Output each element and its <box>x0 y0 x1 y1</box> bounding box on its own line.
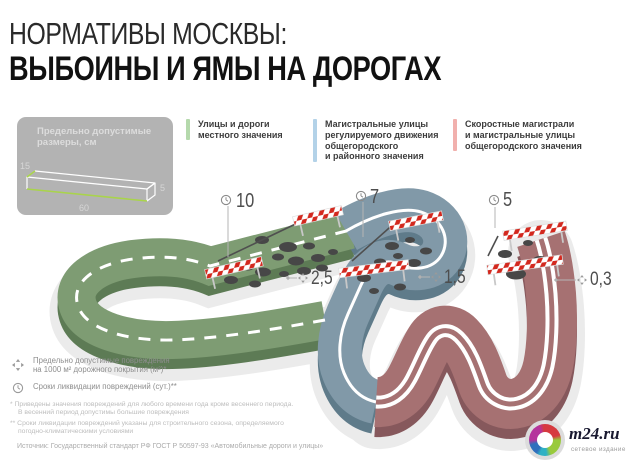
metric-legend-days: Сроки ликвидации повреждений (сут.)** <box>12 382 177 394</box>
footnote-first: * Приведены значения повреждений для люб… <box>10 401 348 418</box>
page-title-line2: ВЫБОИНЫ И ЯМЫ НА ДОРОГАХ <box>9 50 441 89</box>
area-expand-icon <box>577 275 587 285</box>
days-regulated: 7 <box>370 186 379 209</box>
clock-icon <box>220 194 232 206</box>
m24-logo-icon <box>525 420 565 460</box>
metric-legend-area: Предельно допустимые повреждения на 1000… <box>12 356 170 375</box>
clock-icon <box>355 190 367 202</box>
metric-legend-area-label: Предельно допустимые повреждения на 1000… <box>33 356 170 375</box>
legend-item-regulated: Магистральные улицы регулируемого движен… <box>313 119 438 162</box>
area-highway: 0,3 <box>590 269 612 291</box>
legend-item-local: Улицы и дороги местного значения <box>186 119 283 141</box>
area-regulated: 1,5 <box>444 267 466 289</box>
m24-logo-subtitle: сетевое издание <box>571 446 626 453</box>
source-line: Источник: Государственный стандарт РФ ГО… <box>17 443 323 450</box>
legend-swatch-highway <box>453 119 457 151</box>
footnote-second: ** Сроки ликвидации повреждений указаны … <box>10 420 348 437</box>
area-expand-icon <box>298 273 308 283</box>
area-local: 2,5 <box>311 268 333 290</box>
page-title-line1: НОРМАТИВЫ МОСКВЫ: <box>9 16 287 52</box>
clock-icon <box>488 194 500 206</box>
m24-logo-hole <box>537 432 553 448</box>
pothole-dimensions-diagram <box>17 153 173 215</box>
metric-legend-days-label: Сроки ликвидации повреждений (сут.)** <box>33 382 177 394</box>
m24-logo-text: m24.ru <box>569 424 620 444</box>
dim-depth: 5 <box>160 183 165 193</box>
max-size-panel-title: Предельно допустимые размеры, см <box>37 126 151 148</box>
dim-length: 60 <box>79 203 89 213</box>
days-local: 10 <box>236 190 254 213</box>
infographic: НОРМАТИВЫ МОСКВЫ: ВЫБОИНЫ И ЯМЫ НА ДОРОГ… <box>0 0 640 468</box>
legend-swatch-regulated <box>313 119 317 162</box>
legend-label-regulated: Магистральные улицы регулируемого движен… <box>325 119 438 162</box>
legend-label-local: Улицы и дороги местного значения <box>198 119 283 141</box>
legend-label-highway: Скоростные магистрали и магистральные ул… <box>465 119 582 151</box>
legend-swatch-local <box>186 119 190 140</box>
clock-icon <box>12 382 24 394</box>
max-size-panel: Предельно допустимые размеры, см 15 5 60 <box>17 117 173 215</box>
legend-item-highway: Скоростные магистрали и магистральные ул… <box>453 119 582 151</box>
area-expand-icon <box>12 359 24 371</box>
dim-width: 15 <box>20 161 30 171</box>
area-expand-icon <box>431 272 441 282</box>
days-highway: 5 <box>503 189 512 212</box>
